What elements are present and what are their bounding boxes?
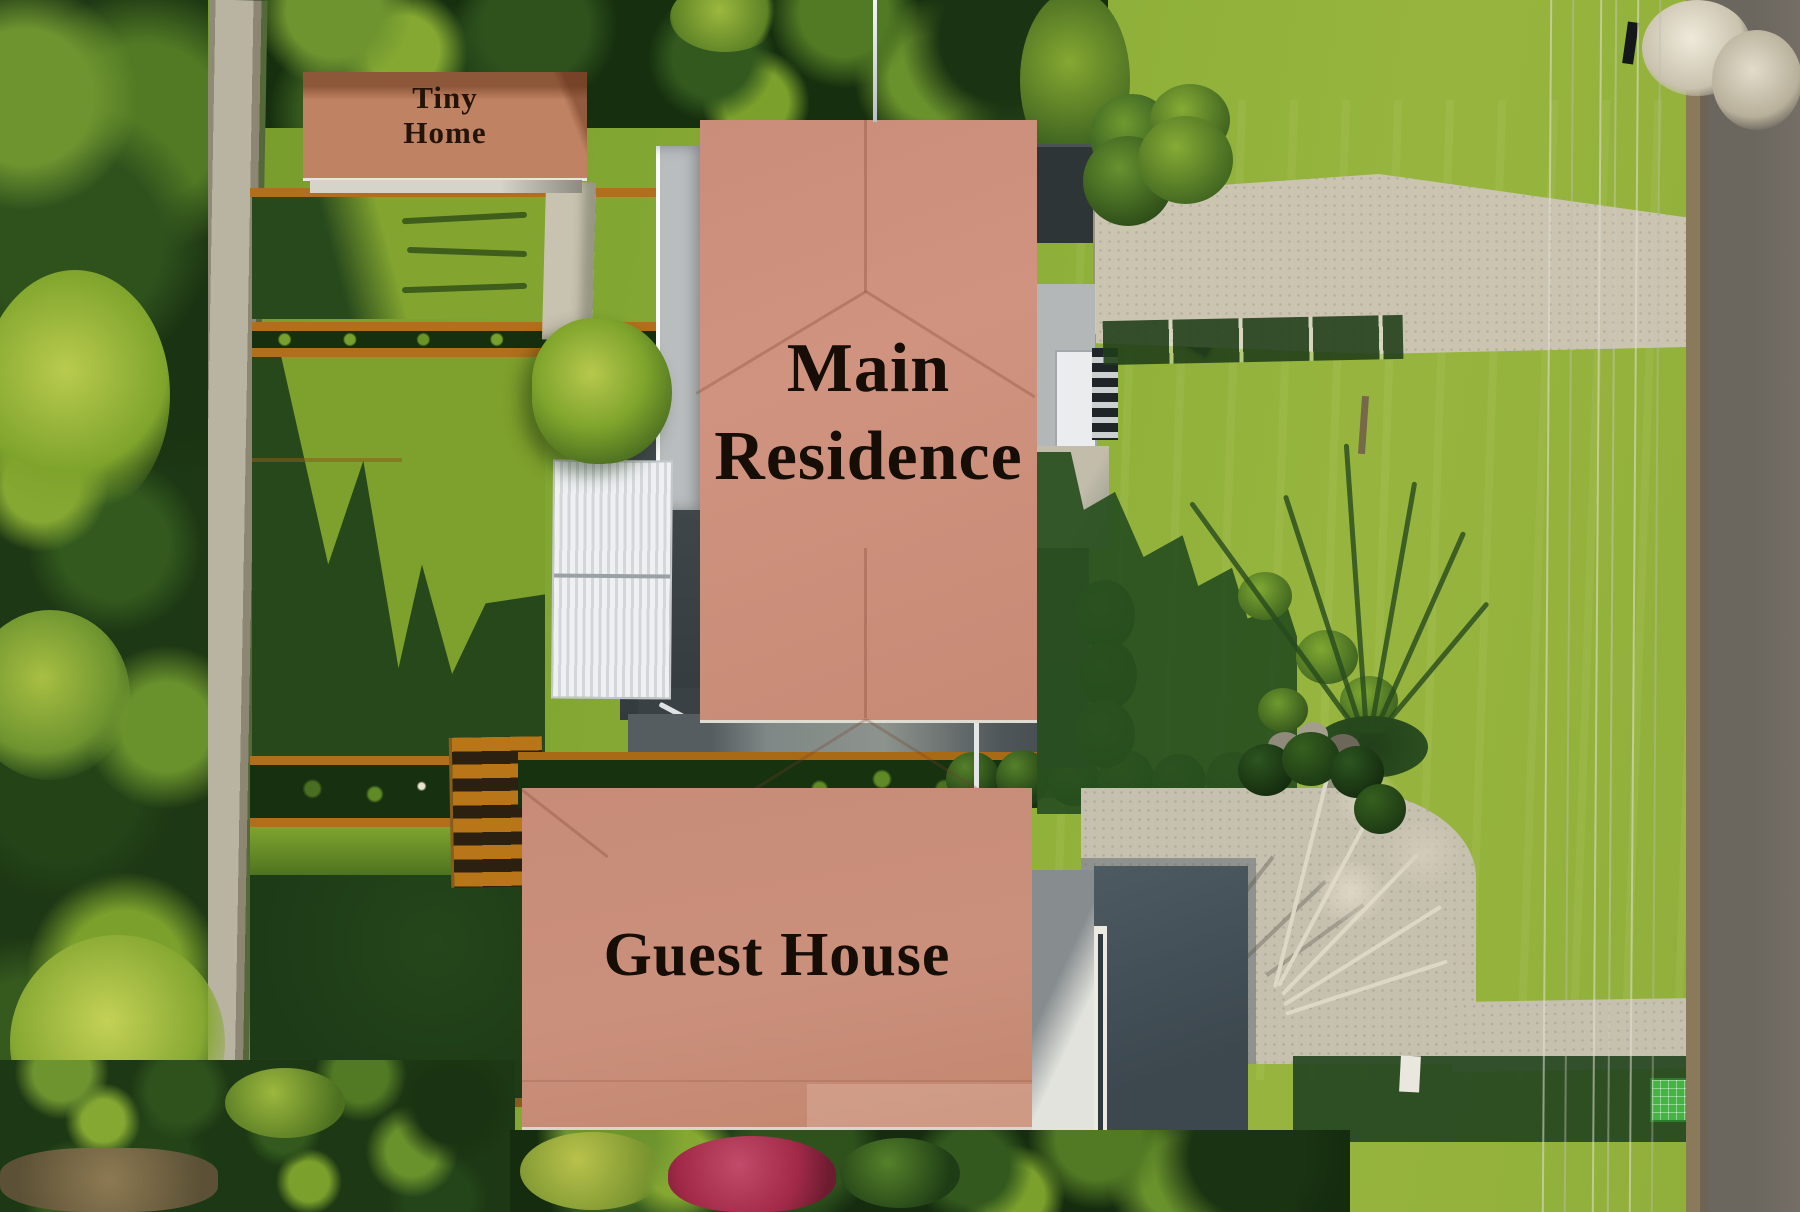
pale-foliage [1712, 30, 1800, 130]
bottom-hedge [510, 1130, 1350, 1212]
street-tree [1622, 0, 1800, 150]
shrub [840, 1138, 960, 1208]
aerial-photo-scene: Tiny Home Main Residence Guest House [0, 0, 1800, 1212]
tiny-home-label-line1: Tiny [303, 80, 587, 115]
fence-shadow [1103, 315, 1404, 365]
tiny-home-wall [310, 180, 582, 193]
shrub [225, 1068, 345, 1138]
lawn-shadow-strip [1293, 1056, 1705, 1142]
veggie-row [402, 212, 527, 225]
roof-ridge [522, 1080, 1032, 1082]
garden-path [542, 181, 596, 340]
guest-house-label: Guest House [522, 922, 1032, 988]
roof-ridge [864, 548, 867, 718]
tiny-home-label: Tiny Home [303, 80, 587, 150]
skylight [1055, 350, 1097, 450]
bright-tree [0, 610, 130, 780]
tree-canopy [1138, 116, 1233, 204]
tiny-home-overlay: Tiny Home [303, 72, 587, 181]
branch-shadow [1377, 601, 1490, 734]
hedge-arc [1238, 732, 1408, 872]
shaded-courtyard [1094, 866, 1248, 1150]
main-house-roof-edge [656, 146, 706, 510]
courtyard-post [1094, 926, 1107, 1140]
timber-edge [252, 458, 402, 462]
veggie-row [407, 247, 527, 257]
main-residence-overlay: Main Residence [700, 120, 1037, 723]
main-residence-label-line2: Residence [700, 413, 1037, 501]
road [1686, 0, 1800, 1212]
main-residence-label: Main Residence [700, 325, 1037, 501]
street-pole [1622, 21, 1639, 64]
utility-marker [1399, 1056, 1421, 1093]
dry-plants [0, 1148, 218, 1212]
left-vegetation [0, 0, 208, 1212]
roof-ridge [520, 788, 609, 858]
bottom-vegetation [0, 1060, 515, 1212]
downpipe [974, 714, 979, 790]
driveway-tree [1083, 116, 1238, 236]
guest-house-overlay: Guest House [522, 788, 1032, 1131]
hedge-bush [1354, 784, 1406, 834]
main-residence-label-line1: Main [700, 325, 1037, 413]
flag-pole [873, 0, 877, 122]
red-shrub [668, 1136, 836, 1212]
guest-east-wall [1030, 870, 1094, 1150]
garden-panel [252, 197, 545, 319]
garden-panel [252, 357, 545, 756]
bright-tree [0, 270, 170, 520]
pergola [551, 459, 673, 699]
tiny-home-label-line2: Home [303, 115, 587, 150]
pergola-seam [554, 573, 670, 578]
veggie-row [402, 283, 527, 293]
roof-light-band [807, 1084, 1032, 1127]
yellow-shrub [520, 1132, 665, 1210]
post-slot [1098, 934, 1103, 1130]
wall-shadow [1030, 870, 1094, 1150]
round-bush [532, 318, 672, 464]
roof-ridge [864, 120, 867, 292]
